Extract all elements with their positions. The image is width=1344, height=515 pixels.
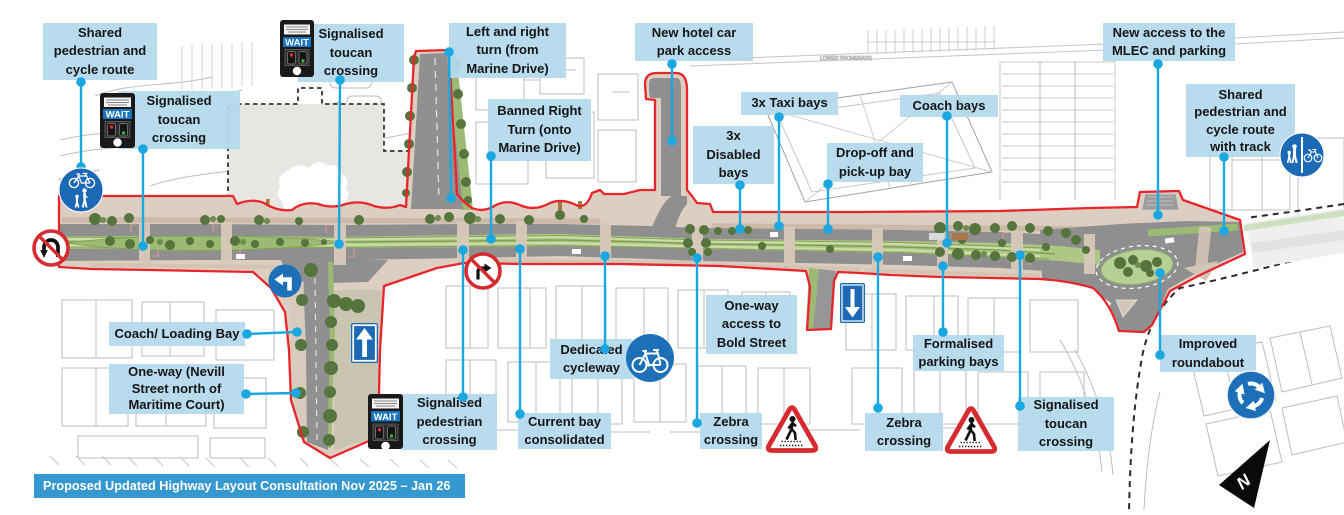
svg-text:WAIT: WAIT <box>106 110 130 121</box>
svg-text:WAIT: WAIT <box>374 412 398 423</box>
svg-text:WAIT: WAIT <box>285 38 309 49</box>
